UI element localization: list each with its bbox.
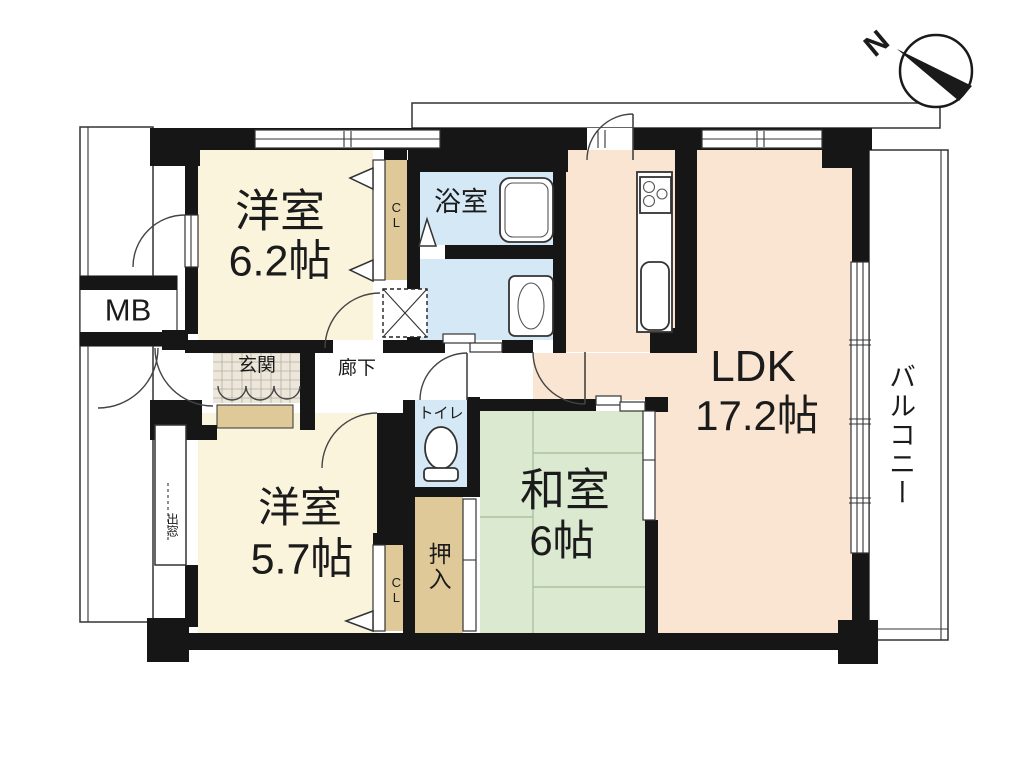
toilet-tank [424, 468, 458, 481]
shared-corridor-outline [80, 127, 153, 622]
japanese-room-sliding-door-top-2 [620, 402, 645, 411]
bathtub [500, 178, 553, 242]
closet-upper-bifold-panel [373, 160, 385, 280]
washroom-sliding-door [443, 334, 475, 343]
compass [897, 35, 972, 107]
japanese-room-size: 6帖 [529, 519, 594, 563]
entrance-label: 玄関 [238, 356, 276, 376]
toilet-bowl [425, 427, 457, 469]
japanese-room-sliding-door-side [643, 411, 655, 520]
vanity-sink [509, 276, 553, 336]
toilet-door [420, 353, 467, 400]
western-room-1-size: 6.2帖 [229, 239, 332, 284]
ldk-label: LDK [710, 344, 796, 390]
washroom-sliding-door-2 [470, 343, 502, 352]
floor-plan: 洋室 6.2帖 浴室 CL MB 玄関 廊下 トイレ LDK 17.2帖 バルコ… [0, 0, 1024, 768]
western-room-1-label: 洋室 [235, 187, 325, 234]
futon-closet-label: 押入 [426, 542, 450, 592]
western-room-2-size: 5.7帖 [251, 537, 354, 582]
balcony-sliding-window [851, 262, 869, 553]
japanese-room-label: 和室 [520, 466, 610, 513]
kitchen-sink [641, 262, 669, 330]
bay-window [155, 425, 186, 565]
floor-plan-drawing [0, 0, 1024, 768]
closet-lower-bifold-panel [373, 545, 385, 631]
service-door-opening [587, 128, 633, 150]
bathroom-label: 浴室 [434, 188, 488, 216]
shoe-cabinet [217, 405, 293, 428]
closet-upper-label: CL [389, 200, 403, 230]
bay-window-label: 出窓 [166, 513, 179, 537]
ldk-floor-mid [533, 353, 697, 400]
futon-closet-fusuma [463, 499, 476, 631]
japanese-room-sliding-door-top [596, 396, 621, 405]
balcony-label: バルコニー [886, 363, 914, 508]
hallway-label: 廊下 [338, 359, 376, 379]
toilet-label: トイレ [418, 406, 463, 422]
closet-lower-label: CL [389, 575, 403, 605]
ldk-size: 17.2帖 [695, 394, 819, 438]
service-area-outline [412, 103, 940, 128]
western-room-2-label: 洋室 [258, 486, 342, 530]
pipe-shaft [383, 289, 427, 337]
meter-box-label: MB [105, 295, 152, 328]
entrance-door-right [155, 348, 213, 406]
